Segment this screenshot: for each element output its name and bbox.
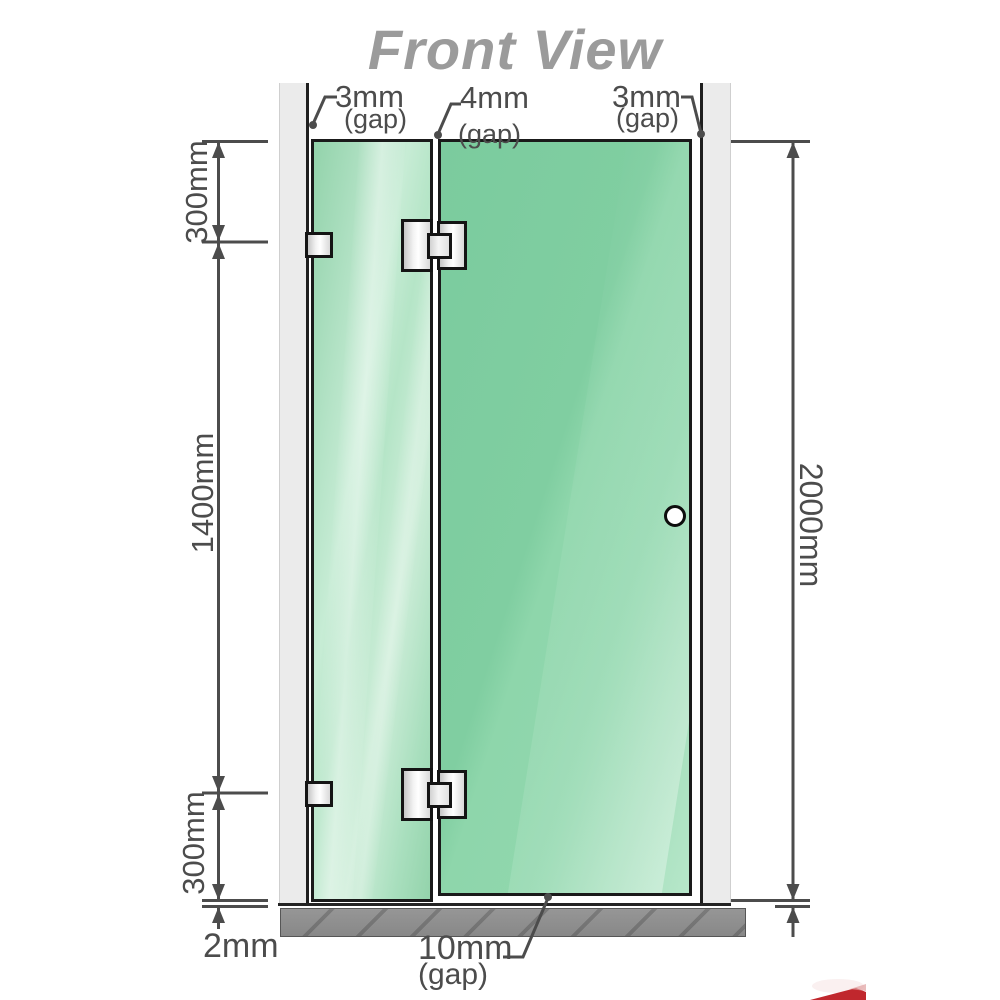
gap-suffix-top-left: (gap) (344, 106, 407, 133)
floor-line (278, 903, 731, 906)
floor-base-slab (280, 908, 746, 937)
wall-bracket-bottom (305, 781, 333, 807)
dim-label-lower-left: 300mm (178, 788, 210, 898)
left-wall (279, 83, 309, 903)
wall-bracket-top (305, 232, 333, 258)
dim-label-middle-left: 1400mm (187, 423, 219, 563)
glass-reflection (498, 139, 692, 896)
dim-label-total-height: 2000mm (793, 450, 827, 600)
right-wall (700, 83, 731, 903)
door-handle (664, 505, 686, 527)
gap-suffix-top-right: (gap) (616, 105, 679, 132)
gap-label-top-middle: 4mm (460, 82, 529, 113)
door-glass-panel (438, 139, 692, 896)
hinge-top-pivot (427, 233, 452, 259)
dim-label-upper-left: 300mm (181, 137, 213, 247)
diagram-canvas: Front View (0, 0, 1000, 1000)
diagram-title: Front View (310, 20, 720, 80)
hinge-bottom-pivot (427, 782, 452, 808)
gap-suffix-bottom: (gap) (418, 960, 488, 990)
red-watermark (810, 979, 866, 1000)
dim-label-base-gap: 2mm (203, 929, 279, 963)
gap-suffix-top-middle: (gap) (458, 121, 521, 148)
